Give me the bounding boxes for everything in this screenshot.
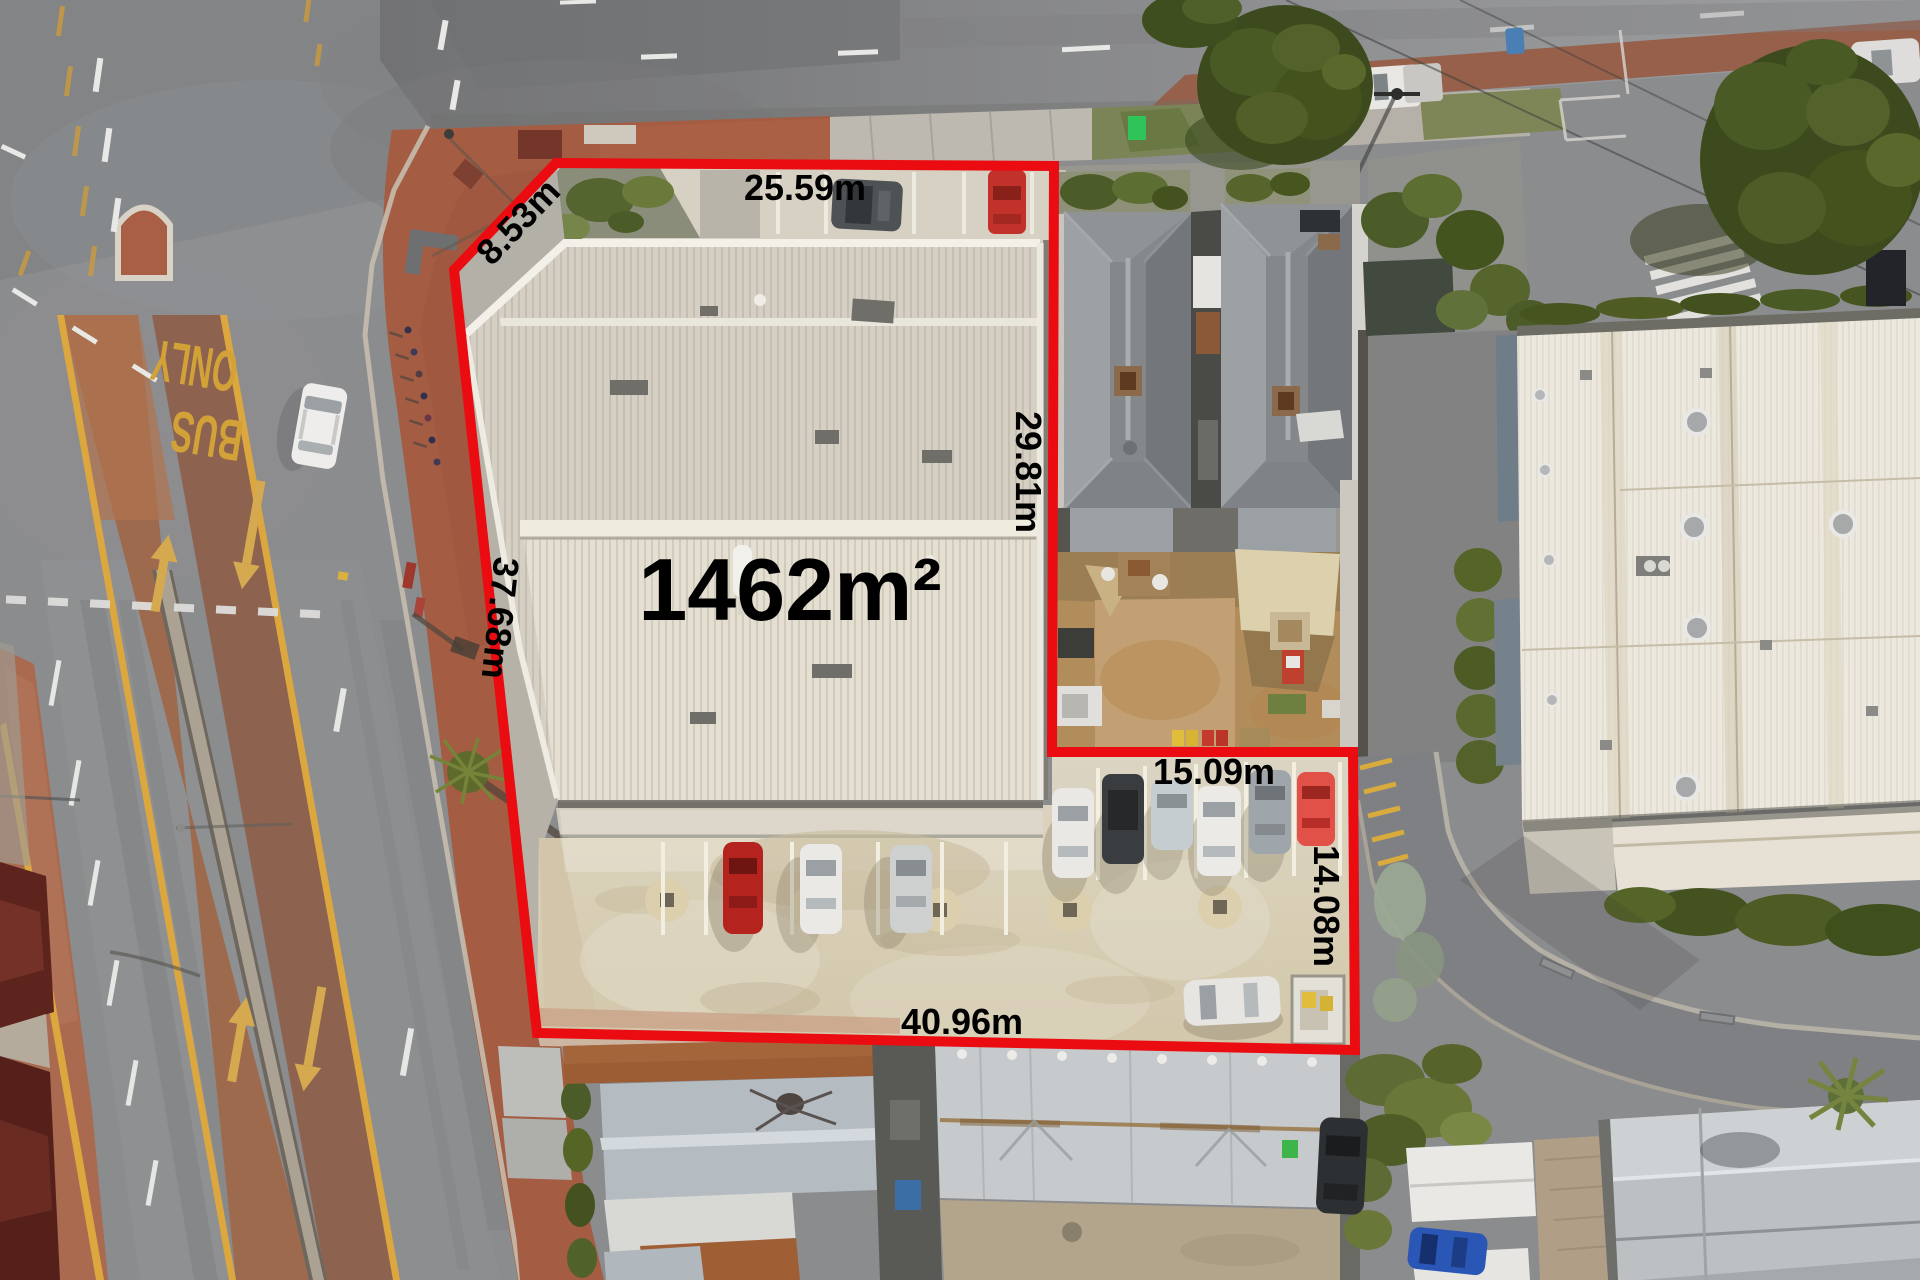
svg-text:BUS: BUS bbox=[166, 398, 247, 473]
svg-text:ONLY: ONLY bbox=[147, 327, 242, 405]
svg-text:25.59m: 25.59m bbox=[744, 167, 866, 208]
svg-text:15.09m: 15.09m bbox=[1153, 751, 1275, 792]
svg-text:29.81m: 29.81m bbox=[1008, 411, 1049, 533]
svg-text:14.08m: 14.08m bbox=[1306, 845, 1347, 967]
svg-text:40.96m: 40.96m bbox=[901, 1001, 1023, 1042]
svg-text:1462m²: 1462m² bbox=[638, 540, 941, 639]
